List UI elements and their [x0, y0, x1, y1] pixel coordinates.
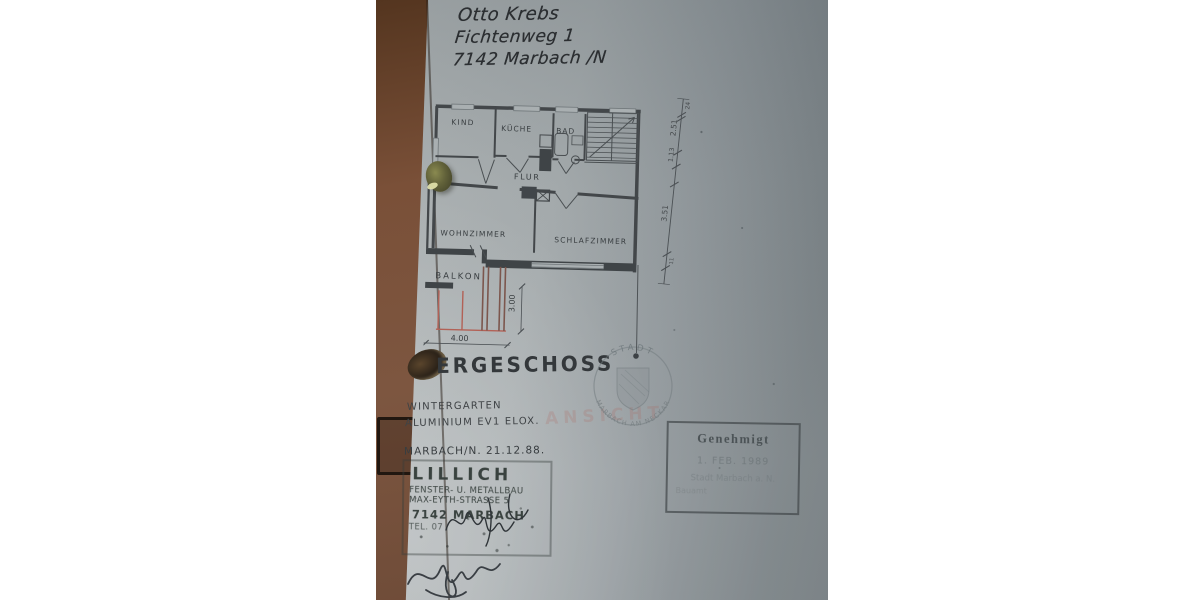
- place-date-line: MARBACH/N. 21.12.88.: [404, 444, 545, 457]
- approval-authority: Stadt Marbach a. N.: [668, 473, 798, 485]
- approval-stamp: Genehmigt 1. FEB. 1989 Stadt Marbach a. …: [665, 421, 801, 515]
- signature-over-stamp: [440, 486, 538, 550]
- plan-south-walls: [425, 248, 636, 293]
- floor-plan: KIND KÜCHE BAD FLUR WOHNZIMMER SCHLAFZIM…: [423, 98, 645, 356]
- handwritten-city: 7142 Marbach /N: [452, 48, 608, 71]
- annotation-line1: WINTERGARTEN: [407, 400, 502, 413]
- plan-door-swings: [477, 157, 637, 210]
- handwritten-name: Otto Krebs: [457, 3, 561, 26]
- company-stamp-name: LILLICH: [412, 464, 550, 485]
- kitchen-fixtures: [539, 135, 552, 171]
- dim-width-label: 4.00: [451, 334, 469, 343]
- chain-seg3-label: 3.51: [659, 204, 670, 222]
- reference-line: [630, 265, 644, 363]
- approval-title: Genehmigt: [668, 431, 798, 448]
- room-label-wohnzimmer: WOHNZIMMER: [440, 228, 506, 239]
- chain-seg1-label: 2.51: [668, 119, 679, 137]
- room-label-schlafzimmer: SCHLAFZIMMER: [554, 235, 627, 246]
- plan-windows: [433, 104, 636, 170]
- approval-date: 1. FEB. 1989: [668, 455, 798, 468]
- dim-depth-label: 3.00: [507, 294, 516, 312]
- chain-bottom-label: 11: [669, 257, 676, 265]
- approval-office: Bauamt: [668, 486, 798, 497]
- room-label-kueche: KÜCHE: [501, 124, 532, 134]
- room-label-flur: FLUR: [514, 172, 541, 182]
- chain-seg2-label: 1.13: [667, 147, 676, 162]
- document-photo: Otto Krebs Fichtenweg 1 7142 Marbach /N: [376, 0, 828, 600]
- staircase: [586, 112, 638, 161]
- photo-canvas: { "doc": { "address": { "line1": "Otto K…: [0, 0, 1200, 600]
- handwritten-street: Fichtenweg 1: [454, 26, 576, 48]
- room-label-kind: KIND: [451, 118, 475, 128]
- chain-top-label: 24: [684, 101, 692, 110]
- signature-bottom: [404, 550, 516, 600]
- annotation-line2: ALUMINIUM EV1 ELOX.: [405, 416, 540, 429]
- room-label-balkon: BALKON: [435, 271, 482, 282]
- room-label-bad: BAD: [556, 126, 575, 135]
